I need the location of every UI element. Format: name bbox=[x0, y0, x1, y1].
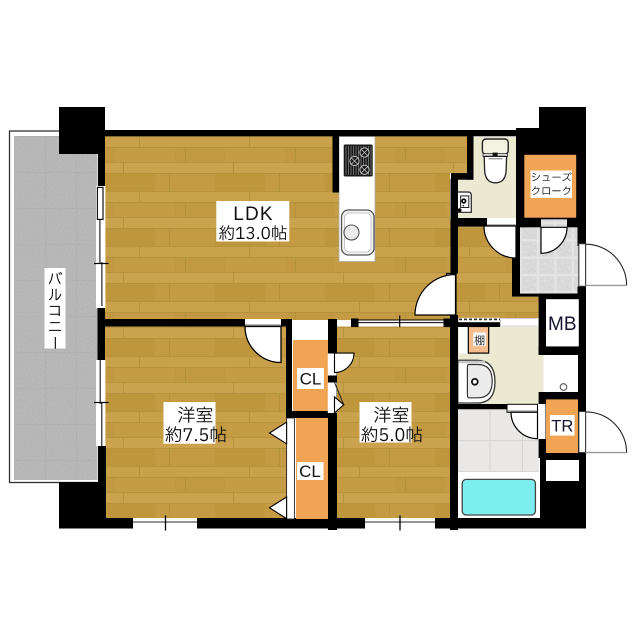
svg-text:CL: CL bbox=[300, 370, 322, 389]
svg-text:TR: TR bbox=[551, 418, 573, 436]
svg-text:MB: MB bbox=[548, 314, 577, 335]
svg-text:CL: CL bbox=[299, 462, 321, 481]
svg-text:LDK: LDK bbox=[233, 204, 274, 225]
